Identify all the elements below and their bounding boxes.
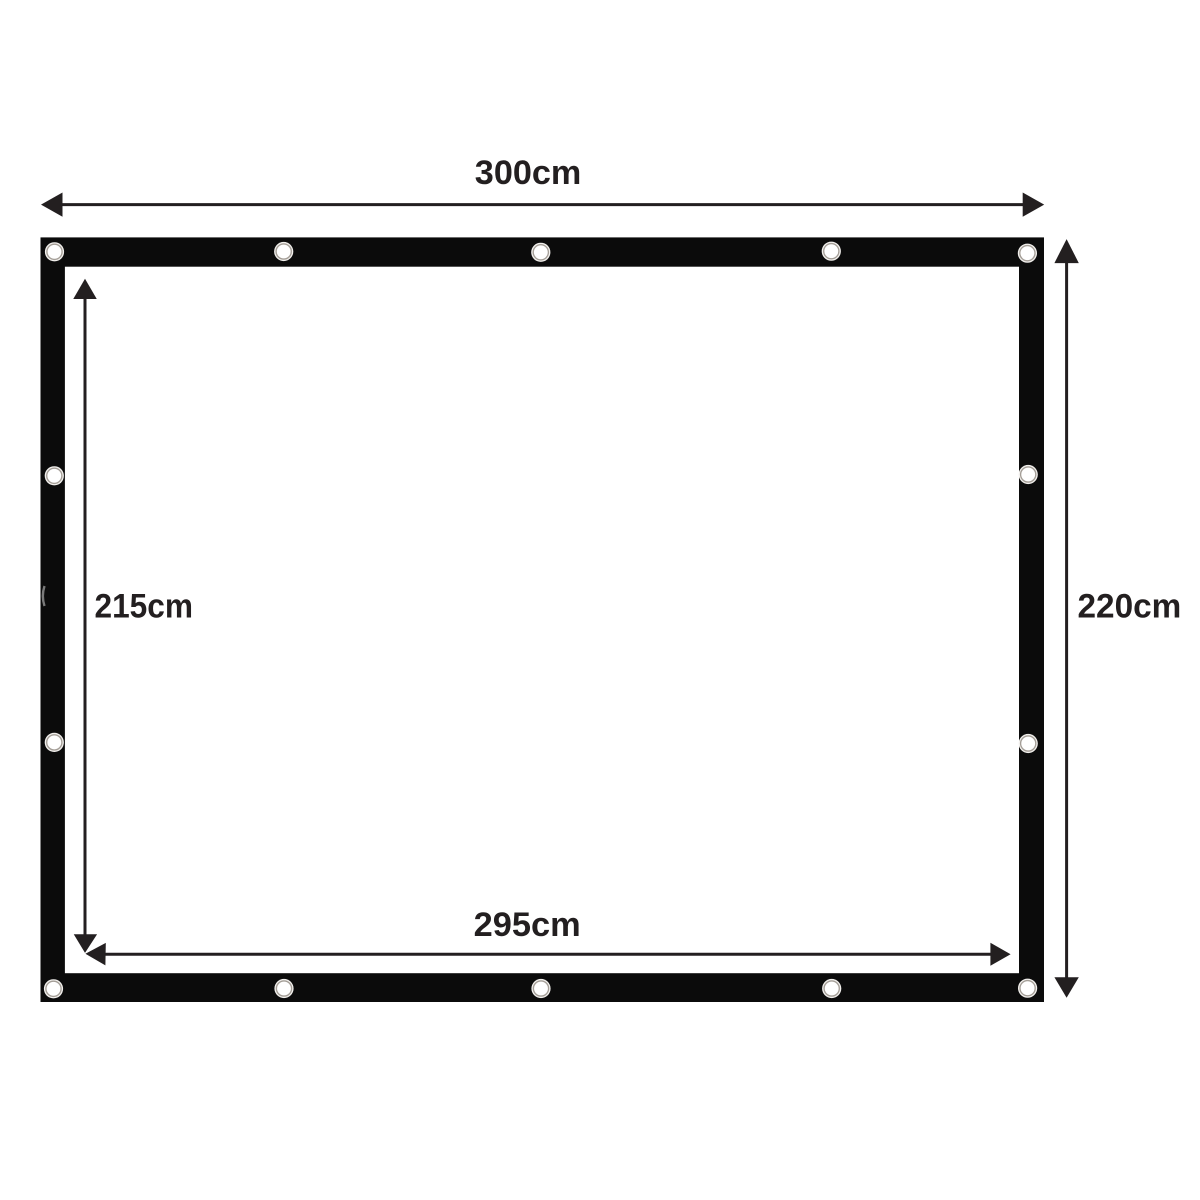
svg-text:300cm: 300cm (475, 154, 582, 192)
svg-text:220cm: 220cm (1078, 588, 1182, 626)
svg-text:295cm: 295cm (474, 906, 581, 944)
svg-text:215cm: 215cm (95, 588, 194, 626)
